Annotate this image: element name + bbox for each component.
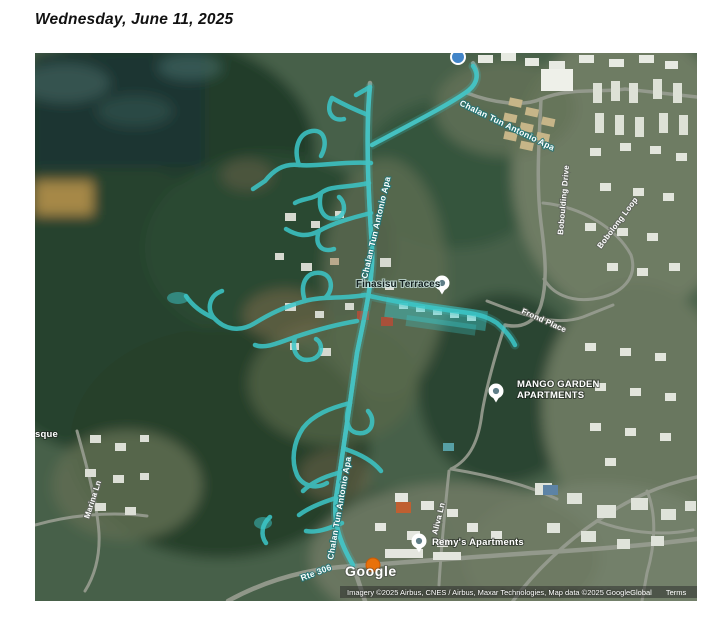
poi-label-remys-apartments[interactable]: Remy's Apartments — [432, 537, 524, 548]
poi-label-finasisu-terraces[interactable]: Finasisu Terraces — [356, 279, 441, 290]
map-attribution-bar: Imagery ©2025 Airbus, CNES / Airbus, Max… — [340, 586, 697, 598]
poi-label-mango-garden-line2[interactable]: APARTMENTS — [517, 390, 584, 401]
top-poi-icon[interactable] — [451, 53, 465, 64]
google-logo[interactable]: Google — [345, 563, 397, 579]
attribution-link-terms[interactable]: Terms — [666, 588, 686, 597]
poi-label-mango-garden-line1[interactable]: MANGO GARDEN — [517, 379, 600, 390]
satellite-map-canvas: Chalan Tun Antonio Apa Chalan Tun Antoni… — [35, 53, 697, 601]
attribution-text: Imagery ©2025 Airbus, CNES / Airbus, Max… — [347, 588, 630, 597]
date-heading: Wednesday, June 11, 2025 — [35, 11, 233, 29]
attribution-link-global[interactable]: Global — [630, 588, 652, 597]
partial-label-left-edge: sque — [35, 429, 58, 440]
map-view[interactable]: Chalan Tun Antonio Apa Chalan Tun Antoni… — [35, 53, 697, 601]
